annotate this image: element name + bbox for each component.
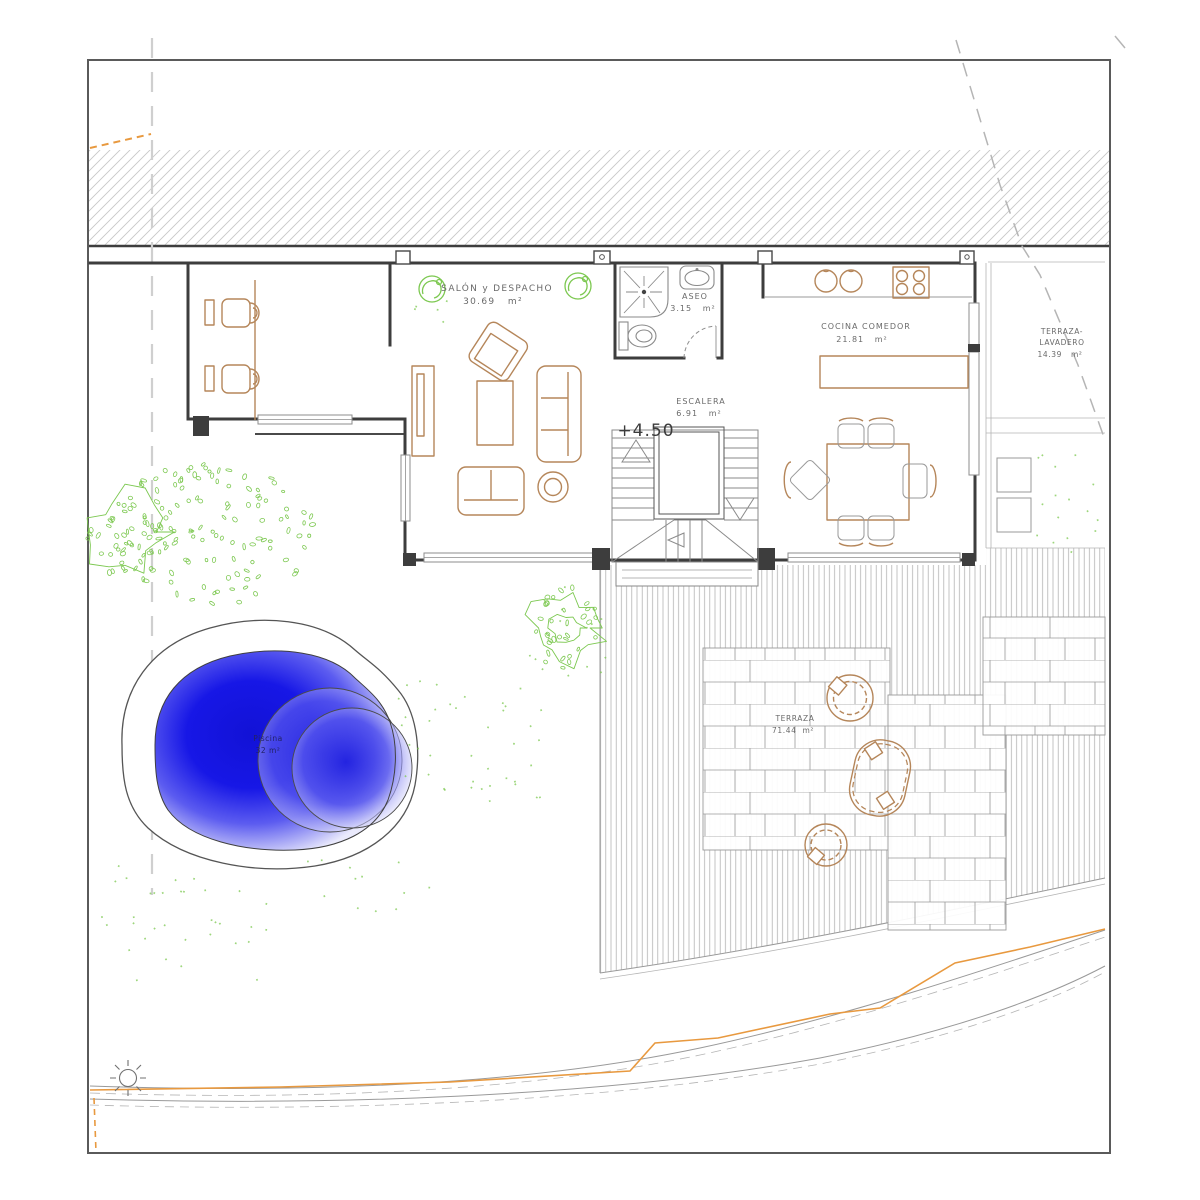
office-furniture	[205, 280, 259, 420]
contour-orange-left	[94, 1098, 96, 1152]
room-label-terraza-lavadero-2: LAVADERO	[1039, 338, 1084, 347]
floor-plan-canvas: SALÓN y DESPACHO 30.69 m² ASEO 3.15 m² C…	[0, 0, 1200, 1200]
sun-icon	[110, 1060, 146, 1096]
sofa-horizontal	[458, 467, 524, 515]
room-label-salon: SALÓN y DESPACHO	[441, 282, 553, 294]
room-label-aseo: ASEO	[682, 292, 708, 301]
planter-2	[997, 498, 1031, 532]
boundary-dash-stub	[1115, 36, 1125, 48]
room-area-terraza: 71.44 m²	[772, 726, 814, 735]
room-label-escalera: ESCALERA	[676, 397, 725, 406]
floor-plan-svg: SALÓN y DESPACHO 30.69 m² ASEO 3.15 m² C…	[0, 0, 1200, 1200]
room-area-salon: 30.69 m²	[463, 297, 523, 307]
paver-patch-3	[983, 617, 1105, 735]
room-area-cocina: 21.81 m²	[836, 335, 888, 344]
sofa-vertical	[537, 366, 581, 462]
stairs	[612, 427, 758, 586]
tv-cabinet	[412, 366, 434, 456]
porch-column-left	[592, 548, 610, 570]
column-se	[962, 553, 975, 566]
column-marker-4	[960, 251, 974, 264]
room-label-terraza: TERRAZA	[774, 714, 814, 723]
kitchen-sink-bowl-1	[815, 270, 837, 292]
pool-label: Piscina	[253, 734, 282, 743]
armchair	[466, 320, 530, 384]
room-label-terraza-lavadero-1: TERRAZA-	[1040, 327, 1083, 336]
hatched-road-band	[89, 150, 1109, 246]
terrain-contours	[90, 929, 1105, 1152]
stair-down-arrow	[726, 498, 754, 520]
pool-area: 32 m²	[256, 746, 281, 755]
column-sw	[403, 553, 416, 566]
room-area-terraza-lavadero: 14.39 m²	[1038, 350, 1083, 359]
living-furniture	[412, 273, 591, 515]
coffee-table	[477, 381, 513, 445]
window-mullion	[968, 344, 980, 352]
column-office	[193, 416, 209, 436]
entrance-porch	[616, 562, 758, 586]
stair-arrow-small	[668, 533, 684, 547]
terraza-lavadero-area	[986, 262, 1105, 548]
dining-table	[827, 444, 909, 520]
house-walls	[90, 251, 980, 570]
planter-1	[997, 458, 1031, 492]
dining-set	[784, 418, 936, 546]
level-marker: +4.50	[617, 421, 674, 441]
plant-icon-2	[565, 273, 591, 299]
porch-column-right	[757, 548, 775, 570]
deck-terraza	[600, 548, 1105, 979]
kitchen-island	[820, 356, 968, 388]
column-marker-2	[594, 251, 610, 264]
room-area-escalera: 6.91 m²	[676, 409, 721, 418]
contour-dash-topleft	[90, 134, 151, 148]
side-table	[538, 472, 568, 502]
door-swing-arc	[684, 326, 716, 358]
column-marker-3	[758, 251, 772, 264]
workstation-1	[205, 299, 259, 327]
pool	[122, 620, 418, 868]
pool-step-circle-2	[292, 708, 412, 828]
toilet-tank	[619, 322, 628, 350]
window-kitchen-east-1	[969, 303, 979, 347]
kitchen-sink-bowl-2	[840, 270, 862, 292]
room-label-cocina: COCINA COMEDOR	[821, 322, 911, 331]
stair-up-arrow	[622, 440, 650, 462]
window-kitchen-east-2	[969, 352, 979, 475]
column-marker-1	[396, 251, 410, 264]
workstation-2	[205, 365, 259, 393]
room-area-aseo: 3.15 m²	[670, 304, 715, 313]
